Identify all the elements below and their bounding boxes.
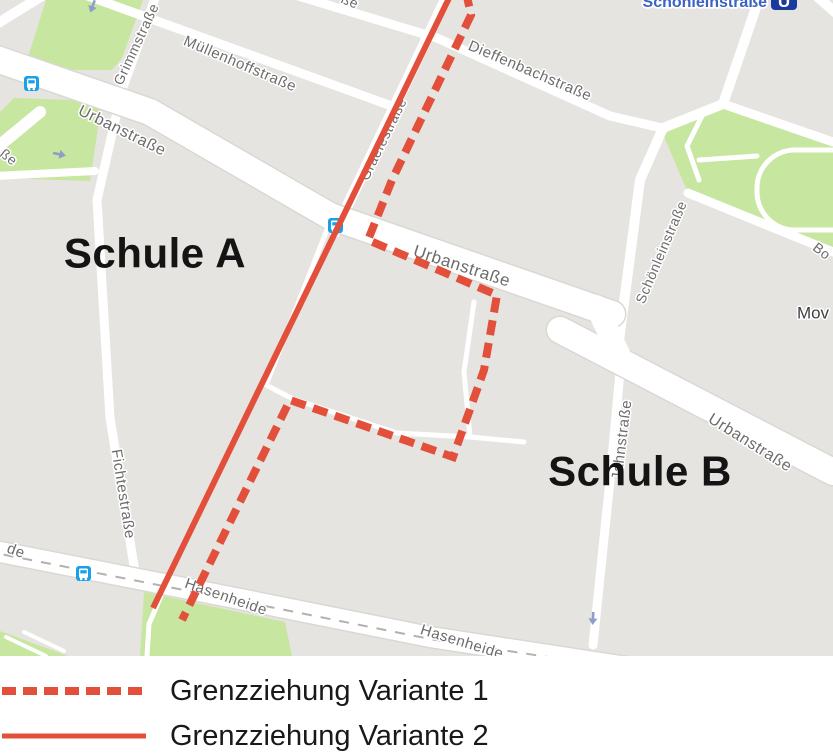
legend-label-variant-2: Grenzziehung Variante 2 [170, 720, 489, 753]
legend-solid-line-swatch [0, 730, 148, 742]
road-fork-left-b [0, 171, 95, 176]
legend-item-variant-1: Grenzziehung Variante 1 [0, 676, 489, 706]
school-a-label: Schule A [64, 230, 246, 277]
ubahn-u-glyph: U [778, 0, 790, 11]
legend: Grenzziehung Variante 1 Grenzziehung Var… [0, 656, 833, 756]
legend-label-variant-1: Grenzziehung Variante 1 [170, 675, 489, 708]
map-canvas[interactable]: Grimmstraße Müllenhoffstraße Urbanstraße… [0, 0, 833, 656]
legend-item-variant-2: Grenzziehung Variante 2 [0, 721, 489, 751]
bus-stop-icon[interactable] [76, 566, 91, 581]
station-label-schoenleinstrasse[interactable]: Schönleinstraße [643, 0, 768, 11]
page: Grimmstraße Müllenhoffstraße Urbanstraße… [0, 0, 833, 756]
map: Grimmstraße Müllenhoffstraße Urbanstraße… [0, 0, 833, 656]
ubahn-station-icon[interactable]: U [771, 0, 797, 11]
bus-stop-icon[interactable] [24, 76, 39, 91]
legend-dashed-line-swatch [0, 685, 148, 697]
school-b-label: Schule B [548, 448, 732, 495]
poi-label-mov: Mov [797, 304, 830, 323]
